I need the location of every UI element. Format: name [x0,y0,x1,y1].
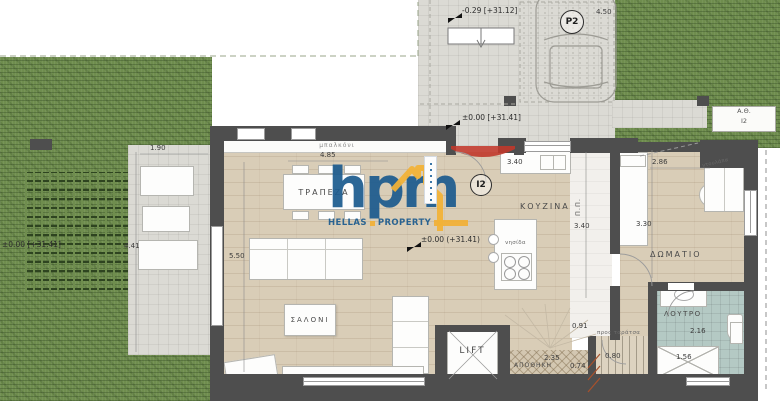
living-room-rug: ΣΑΛΟΝΙ [284,304,336,336]
elevation-interior: ±0.00 (+31.41) [421,235,480,244]
wall [610,150,620,254]
dining-chair [292,165,309,174]
dim-storage-height: 0.74 [570,362,586,370]
elevation-entrance: ±0.00 [+31.41] [462,113,521,122]
heat-pump-box: Α.Θ. I2 [712,106,776,132]
sun-lounger [142,206,190,232]
dim-counter: 3.40 [507,158,523,166]
kitchen-window [524,141,571,152]
bed-pillow [620,155,646,167]
brand-square-icon [370,221,375,226]
gate-post-left [504,96,516,106]
floor-plan: μπαλκόνι ΤΡΑΠΕΖΑ ΣΑΛΟΝΙ [0,0,780,401]
dim-bath-height: 2.16 [690,327,706,335]
living-window [303,377,425,386]
dim-stairs-width: 0.80 [605,352,621,360]
sofa [249,238,363,280]
dim-bedroom-height: 3.30 [636,220,652,228]
kitchen-label: ΚΟΥΖΙΝΑ [520,202,570,211]
bath-window [686,377,730,386]
kitchen-sink [540,155,566,170]
burner-icon [518,256,530,268]
heat-pump-line2: I2 [713,117,775,127]
lift-label: LIFT [447,346,498,356]
dim-shower-width: 1.56 [676,353,692,361]
unit-badge: I2 [470,174,492,196]
cooktop [501,253,532,281]
driveway-paving [418,0,618,146]
window [291,128,316,140]
dim-terrace-height: 4.41 [124,242,140,250]
island-bowl [488,252,499,263]
balcony-strip: μπαλκόνι [222,139,452,153]
storage-label: ΑΠΟΘΗΚΗ [514,362,552,369]
elevation-driveway: -0.29 [+31.12] [462,6,517,15]
dim-terrace-width: 1.90 [150,144,166,152]
brand-bar-icon [434,220,468,226]
island-label: νησίδα [494,238,537,247]
pergola-post [30,139,52,150]
burner-icon [504,256,516,268]
agency-word2: PROPERTY [378,218,431,228]
burner-icon [504,268,516,280]
dim-storage-width: 2.35 [544,354,560,362]
hall-floor [570,150,612,338]
wall [648,282,746,291]
heat-pump-line1: Α.Θ. [713,107,775,117]
living-room-label: ΣΑΛΟΝΙ [291,316,330,324]
balcony-label: μπαλκόνι [319,142,355,149]
burner-icon [518,268,530,280]
wall [636,142,706,152]
stairs-note: προς ταράτσα [597,330,640,336]
sun-lounger [138,240,198,270]
bedroom-window [744,190,757,236]
agency-logo: hpm [328,160,468,218]
entrance-pier [514,138,524,155]
sun-lounger [140,166,194,196]
wall [588,336,596,392]
dim-kitchen-height: 3.40 [574,222,590,230]
lift-wall [498,325,510,391]
dim-parking: 4.50 [596,8,612,16]
agency-watermark: hpm HELLAS PROPERTY [328,160,468,228]
elevation-garden: ±0.00 [+31.41] [2,240,61,249]
window [237,128,265,140]
wall [648,282,657,376]
entrance-pier [446,138,456,155]
cabinet [392,296,429,374]
agency-word1: HELLAS [328,218,367,228]
terrace-sliding-door [211,226,223,326]
hall-label: Π.Π. [574,198,582,216]
dim-bedroom-width: 2.86 [652,158,668,166]
walkway-paving [612,100,707,128]
gate-post-right [697,96,709,106]
bath-label: ΛΟΥΤΡΟ [664,310,702,318]
dining-chair [292,211,309,220]
wall [570,138,638,153]
garden-deck-slats [25,172,128,290]
wall [744,140,758,392]
parking-badge: P2 [560,10,584,34]
lift-wall [435,325,447,391]
bath-column [730,322,743,344]
bedroom-label: ΔΩΜΑΤΙΟ [650,250,702,259]
dim-hall-width: 0.91 [572,322,588,330]
watermark-vertical-strip [424,156,437,204]
dim-living-width: 5.50 [229,252,245,260]
wall [210,374,758,401]
bath-door-gap [668,283,694,290]
